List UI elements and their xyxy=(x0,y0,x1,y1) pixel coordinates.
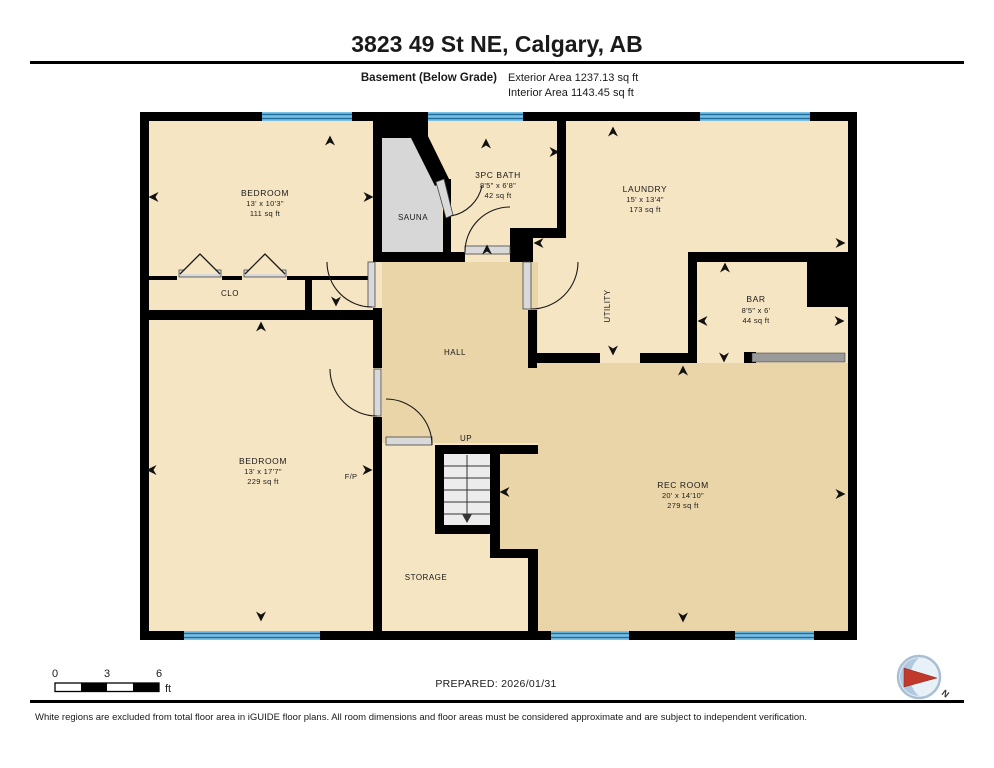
interior-area: Interior Area 1143.45 sq ft xyxy=(508,87,634,99)
door-leaf xyxy=(523,262,531,309)
room-label-rec-room: REC ROOM xyxy=(657,480,709,490)
window xyxy=(428,112,523,121)
floor-plan-canvas: 3823 49 St NE, Calgary, AB Basement (Bel… xyxy=(0,0,994,768)
room-label-storage: STORAGE xyxy=(405,573,447,582)
footer-divider xyxy=(30,700,964,703)
stairs-up-label: UP xyxy=(460,434,472,443)
door-leaf xyxy=(374,369,381,416)
window xyxy=(184,631,320,640)
disclaimer-text: White regions are excluded from total fl… xyxy=(35,712,807,723)
room-dims-bedroom1: 13' x 10'3" xyxy=(246,199,284,208)
compass-icon: N xyxy=(898,656,951,700)
room-label-closet: CLO xyxy=(221,289,239,298)
scale-bar: 0 3 6 ft xyxy=(52,668,171,695)
room-area-bedroom1: 111 sq ft xyxy=(250,209,281,218)
window xyxy=(262,112,352,121)
room-label-bedroom2: BEDROOM xyxy=(239,456,287,466)
header-divider xyxy=(30,61,964,64)
room-label-bedroom1: BEDROOM xyxy=(241,188,289,198)
compass-north-label: N xyxy=(940,688,951,700)
door-leaf xyxy=(368,262,375,307)
room-area-laundry: 173 sq ft xyxy=(629,205,661,214)
room-label-hall: HALL xyxy=(444,348,466,357)
page-title: 3823 49 St NE, Calgary, AB xyxy=(351,31,642,57)
fireplace-label: F/P xyxy=(345,472,358,481)
scale-tick-0: 0 xyxy=(52,668,58,680)
room-dims-bath: 8'5" x 6'8" xyxy=(480,181,516,190)
exterior-area: Exterior Area 1237.13 sq ft xyxy=(508,72,638,84)
room-label-sauna: SAUNA xyxy=(398,213,428,222)
room-dims-bedroom2: 13' x 17'7" xyxy=(244,467,282,476)
floor-label: Basement (Below Grade) xyxy=(361,72,497,84)
scale-tick-3: 3 xyxy=(104,668,110,680)
bar-counter xyxy=(744,352,845,363)
room-area-bath: 42 sq ft xyxy=(485,191,513,200)
room-area-rec-room: 279 sq ft xyxy=(667,501,699,510)
prepared-date: PREPARED: 2026/01/31 xyxy=(435,678,556,690)
room-dims-bar: 8'5" x 6' xyxy=(742,306,771,315)
room-label-laundry: LAUNDRY xyxy=(623,184,668,194)
room-label-utility: UTILITY xyxy=(603,289,612,322)
room-label-bath: 3PC BATH xyxy=(475,170,521,180)
floor-plan-page: 3823 49 St NE, Calgary, AB Basement (Bel… xyxy=(0,0,994,768)
scale-tick-6: 6 xyxy=(156,668,162,680)
room-area-bar: 44 sq ft xyxy=(743,316,771,325)
window xyxy=(551,631,629,640)
window xyxy=(700,112,810,121)
room-area-bedroom2: 229 sq ft xyxy=(247,477,279,486)
scale-unit: ft xyxy=(165,683,171,695)
window xyxy=(735,631,814,640)
door-leaf xyxy=(386,437,432,445)
room-dims-rec-room: 20' x 14'10" xyxy=(662,491,704,500)
room-label-bar: BAR xyxy=(746,294,765,304)
room-dims-laundry: 15' x 13'4" xyxy=(626,195,664,204)
staircase xyxy=(444,454,490,525)
